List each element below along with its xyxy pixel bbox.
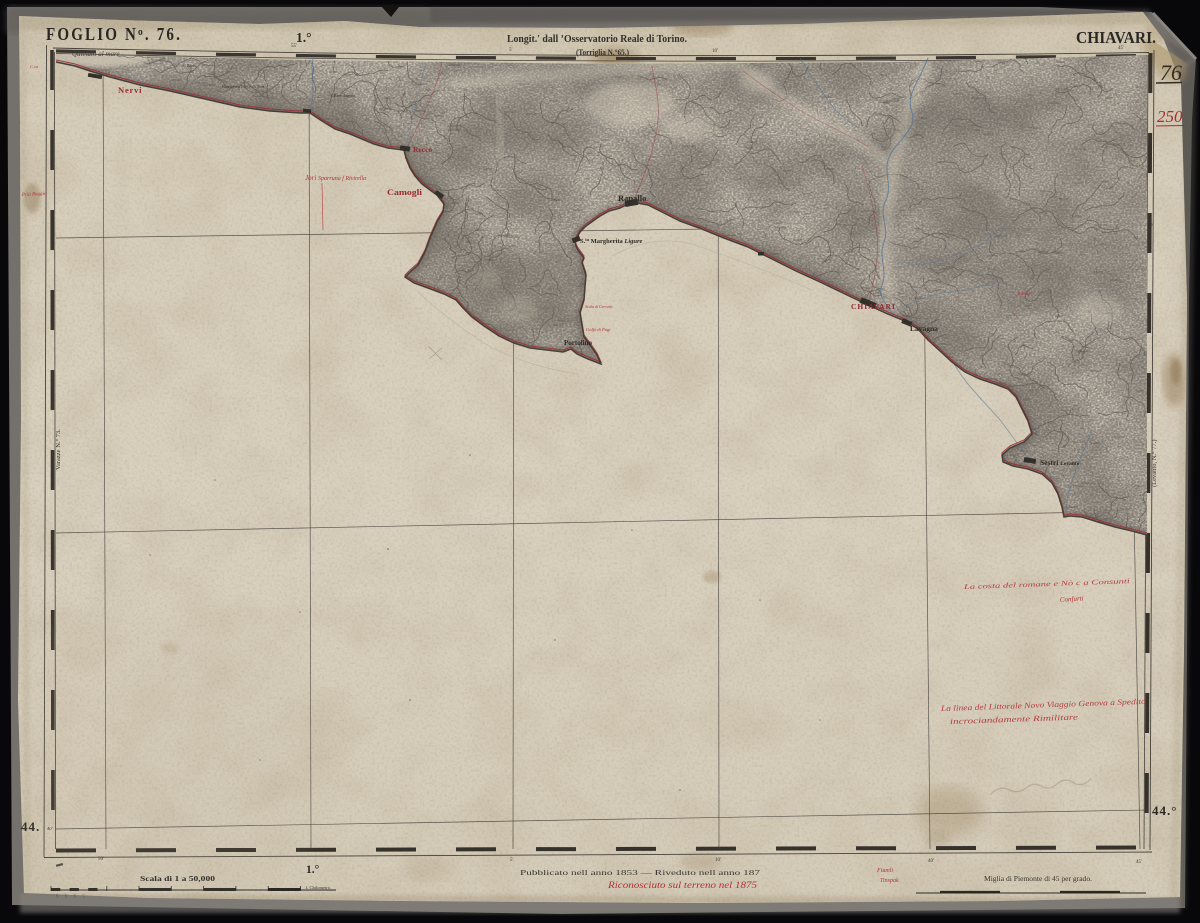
svg-text:40′: 40′ xyxy=(928,859,934,864)
svg-text:10′: 10′ xyxy=(712,49,718,54)
svg-text:44.°: 44.° xyxy=(1152,803,1177,818)
svg-text:Riconosciuto sul terreno nel 1: Riconosciuto sul terreno nel 1875 xyxy=(607,880,758,890)
svg-text:45′: 45′ xyxy=(1118,46,1124,51)
svg-text:50′: 50′ xyxy=(98,857,104,862)
svg-text:Tinspak: Tinspak xyxy=(880,878,899,884)
svg-text:10′: 10′ xyxy=(715,858,721,863)
svg-text:E.Fagli: E.Fagli xyxy=(1017,291,1032,296)
svg-text:Longit.′ dall ’Osservatorio Re: Longit.′ dall ’Osservatorio Reale di Tor… xyxy=(507,34,687,45)
svg-text:Miglia di Piemonte di 45 per g: Miglia di Piemonte di 45 per grado. xyxy=(984,876,1092,883)
svg-text:5′: 5′ xyxy=(510,858,514,863)
svg-text:S. Ilario: S. Ilario xyxy=(182,63,197,68)
svg-text:→ L…: → L… xyxy=(1008,312,1020,317)
svg-text:5 5 5 5: 5 5 5 5 xyxy=(56,895,87,900)
svg-text:Recco: Recco xyxy=(413,145,432,154)
svg-text:S.ta Margherita Ligure: S.ta Margherita Ligure xyxy=(580,237,643,245)
svg-text:C.va: C.va xyxy=(30,64,39,69)
svg-text:76: 76 xyxy=(1160,60,1182,85)
svg-text:Rapallo: Rapallo xyxy=(618,193,646,203)
svg-text:55′: 55′ xyxy=(291,44,297,49)
svg-text:250: 250 xyxy=(1157,107,1183,126)
svg-text:Portolino: Portolino xyxy=(564,339,592,347)
svg-text:Camogli: Camogli xyxy=(387,188,423,197)
svg-text:Nervi: Nervi xyxy=(118,85,142,95)
svg-text:(Levanto, N.° 77.): (Levanto, N.° 77.) xyxy=(1151,439,1158,487)
svg-text:Lavagna: Lavagna xyxy=(910,324,938,333)
svg-text:Pubblicato nell anno 1853 — Ri: Pubblicato nell anno 1853 — Riveduto nel… xyxy=(520,870,761,877)
svg-text:1.°: 1.° xyxy=(306,864,320,876)
svg-text:Confurti: Confurti xyxy=(1060,594,1084,604)
svg-text:Varazze N.° 73.: Varazze N.° 73. xyxy=(55,429,62,470)
svg-text:45′: 45′ xyxy=(1136,860,1142,865)
svg-text:FOGLIO No. 76.: FOGLIO No. 76. xyxy=(46,24,182,44)
svg-text:CHIAVARI: CHIAVARI xyxy=(851,302,896,311)
svg-text:Bogliasco Pieve di Sori: Bogliasco Pieve di Sori xyxy=(222,84,265,89)
svg-text:Golfo di Pagi: Golfo di Pagi xyxy=(586,327,611,332)
svg-text:Fiumli: Fiumli xyxy=(876,868,893,874)
svg-text:CHIAVARI.: CHIAVARI. xyxy=(1076,28,1156,47)
svg-text:5′: 5′ xyxy=(509,48,513,53)
svg-text:Scala di Cervara: Scala di Cervara xyxy=(585,304,612,309)
svg-text:Jori Sparruna f Rivirella: Jori Sparruna f Rivirella xyxy=(305,174,366,182)
svg-text:(Torriglia N.°65.): (Torriglia N.°65.) xyxy=(576,48,629,57)
svg-text:20: 20 xyxy=(1148,222,1153,227)
svg-text:1.°: 1.° xyxy=(296,30,312,45)
svg-text:1. Chilometro.: 1. Chilometro. xyxy=(305,885,331,890)
svg-text:S.Bartolomeo: S.Bartolomeo xyxy=(330,93,356,98)
svg-text:Quietato al mare: Quietato al mare xyxy=(72,50,120,58)
